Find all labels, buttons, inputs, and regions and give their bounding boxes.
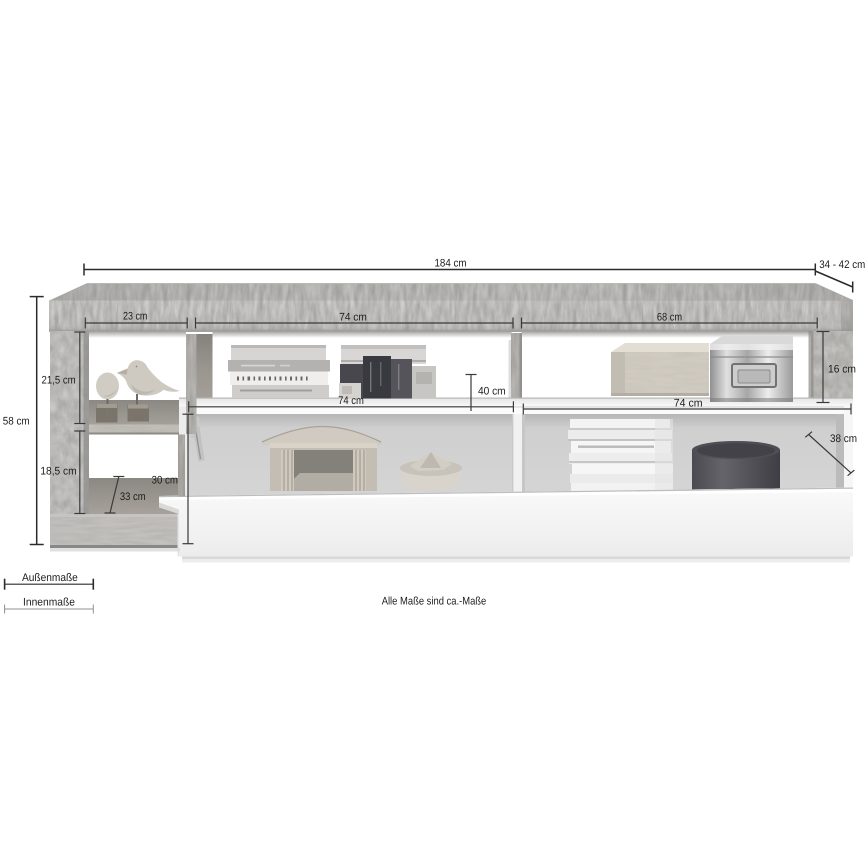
- svg-text:18,5 cm: 18,5 cm: [40, 465, 76, 477]
- svg-text:68 cm: 68 cm: [657, 311, 682, 323]
- svg-text:33 cm: 33 cm: [120, 491, 146, 503]
- svg-text:Innenmaße: Innenmaße: [23, 596, 75, 608]
- svg-text:Alle Maße sind ca.-Maße: Alle Maße sind ca.-Maße: [382, 595, 487, 607]
- svg-text:21,5 cm: 21,5 cm: [42, 374, 76, 386]
- svg-text:74 cm: 74 cm: [338, 395, 364, 407]
- svg-text:Außenmaße: Außenmaße: [22, 572, 78, 584]
- svg-text:58 cm: 58 cm: [3, 415, 30, 427]
- svg-text:16 cm: 16 cm: [828, 363, 856, 375]
- svg-text:34 - 42 cm: 34 - 42 cm: [819, 259, 865, 271]
- svg-text:23 cm: 23 cm: [123, 310, 147, 322]
- svg-text:74 cm: 74 cm: [339, 311, 367, 323]
- svg-text:184 cm: 184 cm: [435, 257, 467, 269]
- svg-text:74 cm: 74 cm: [674, 397, 703, 409]
- svg-text:30 cm: 30 cm: [152, 474, 178, 486]
- svg-text:38 cm: 38 cm: [830, 433, 857, 445]
- svg-text:40 cm: 40 cm: [478, 385, 506, 397]
